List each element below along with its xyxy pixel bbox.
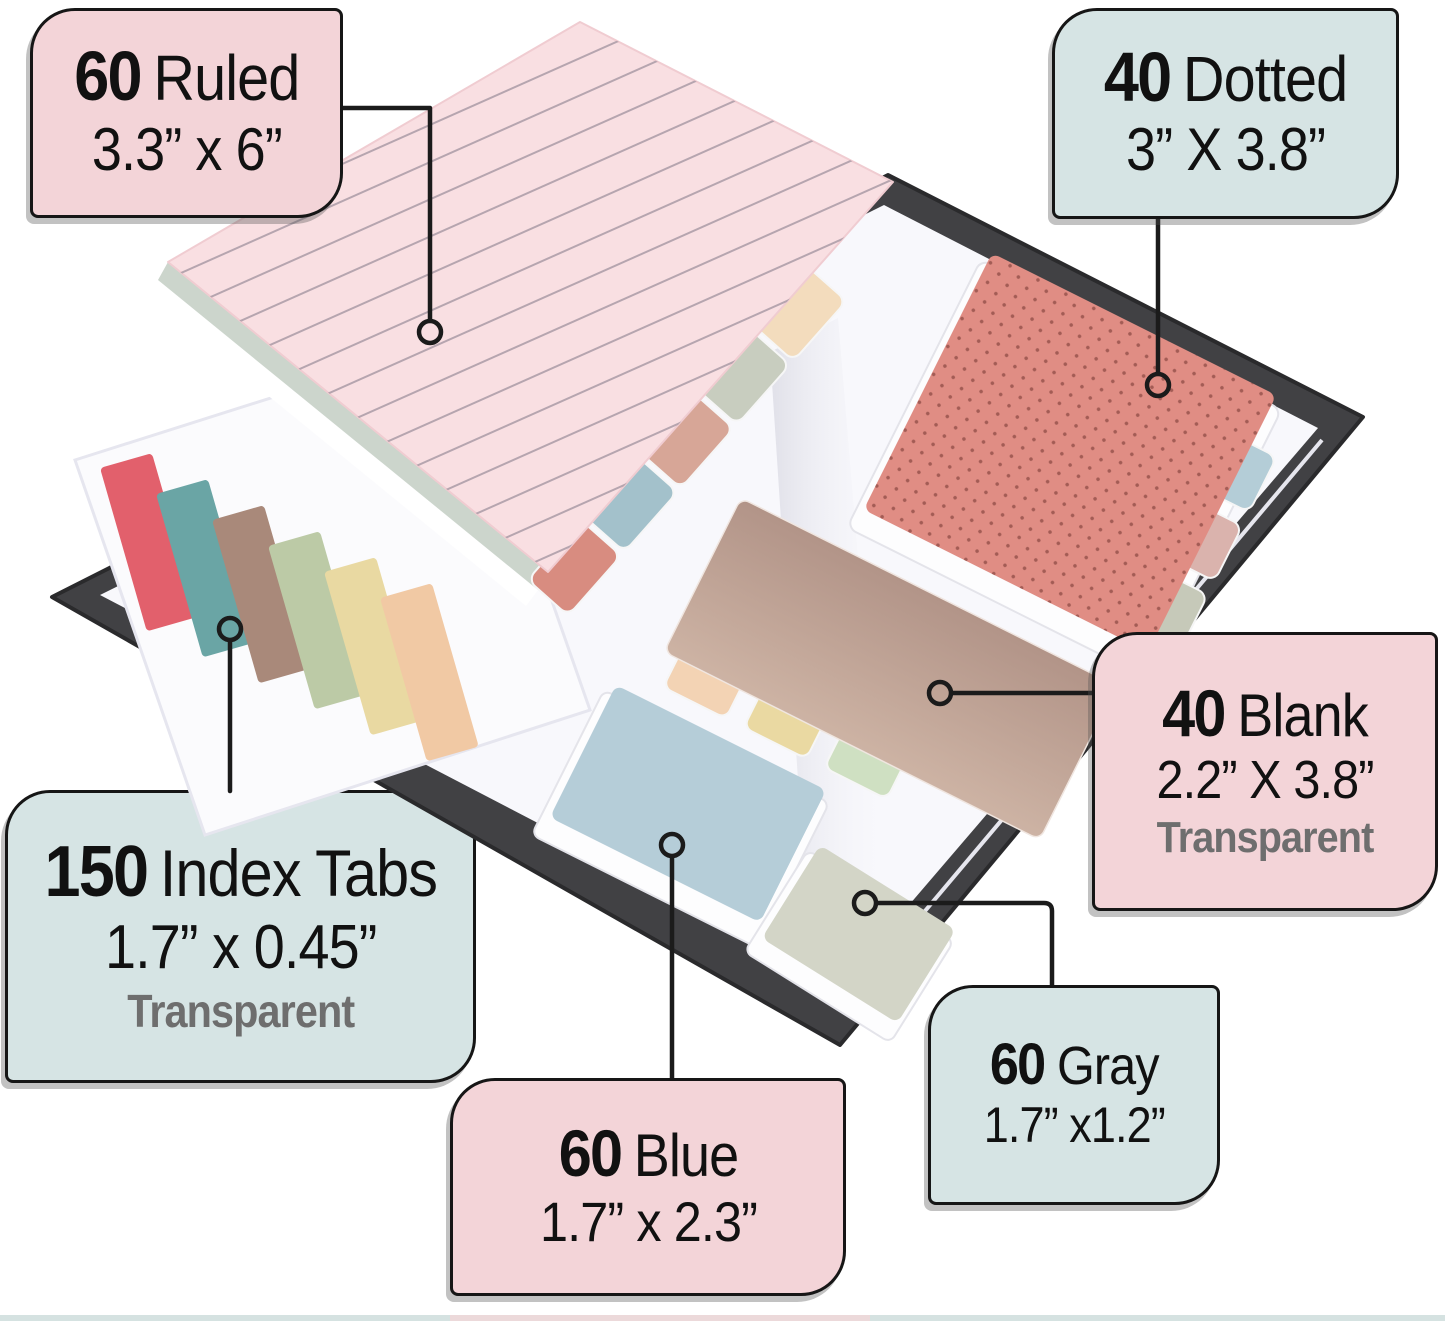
callout-ruled-title: 60 Ruled (35, 40, 339, 114)
callout-dotted: 40 Dotted 3” X 3.8” (1052, 8, 1399, 219)
callout-dotted-title: 40 Dotted (1057, 41, 1395, 115)
callout-blank-title: 40 Blank (1097, 679, 1434, 748)
callout-blue-title: 60 Blue (455, 1119, 841, 1188)
gray-size: 1.7” x1.2” (932, 1095, 1215, 1155)
callout-blue: 60 Blue 1.7” x 2.3” (450, 1078, 846, 1296)
dotted-count: 40 (1104, 41, 1170, 115)
product-infographic: 60 Ruled 3.3” x 6” 40 Dotted 3” X 3.8” 1… (0, 0, 1445, 1321)
gray-count: 60 (990, 1035, 1044, 1096)
blank-note: Transparent (1097, 813, 1434, 864)
blue-label: Blue (633, 1124, 737, 1187)
blue-count: 60 (558, 1119, 620, 1188)
dotted-size: 3” X 3.8” (1057, 114, 1395, 186)
blue-size: 1.7” x 2.3” (455, 1188, 841, 1255)
gray-label: Gray (1057, 1038, 1159, 1095)
callout-gray: 60 Gray 1.7” x1.2” (928, 985, 1220, 1205)
ruled-count: 60 (74, 40, 140, 114)
callout-ruled: 60 Ruled 3.3” x 6” (30, 8, 343, 218)
callout-gray-title: 60 Gray (932, 1035, 1215, 1096)
blank-label: Blank (1237, 684, 1368, 747)
dotted-label: Dotted (1183, 46, 1347, 113)
ruled-label: Ruled (153, 45, 299, 112)
callout-blank: 40 Blank 2.2” X 3.8” Transparent (1092, 632, 1438, 911)
ruled-size: 3.3” x 6” (35, 114, 339, 186)
blank-size: 2.2” X 3.8” (1097, 748, 1434, 813)
blank-count: 40 (1162, 679, 1224, 748)
